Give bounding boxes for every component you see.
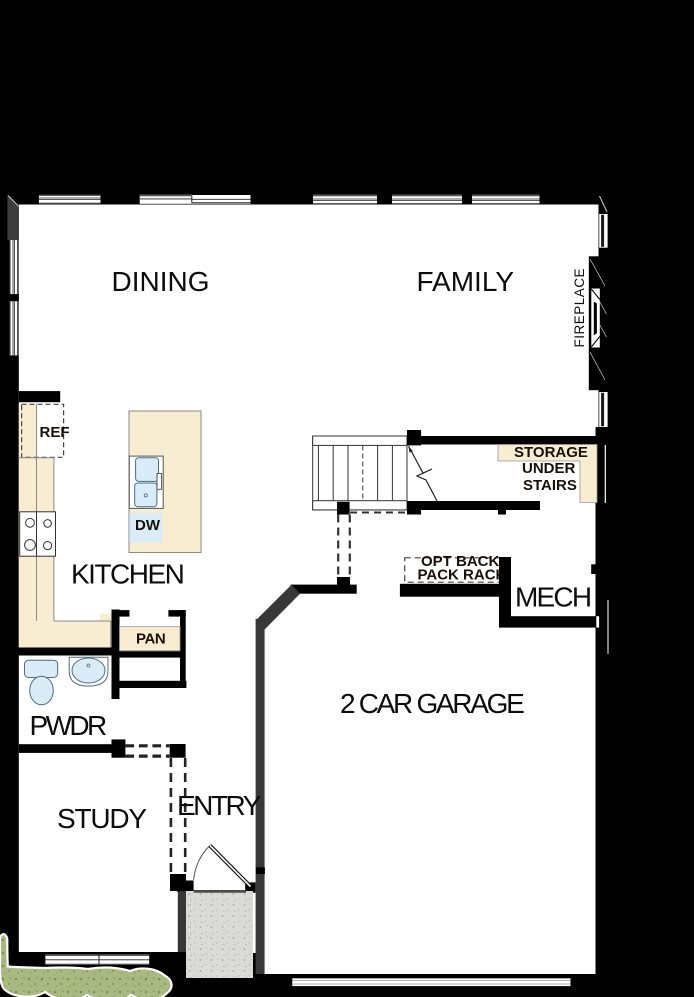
svg-text:DW: DW (135, 517, 161, 534)
svg-text:REF: REF (40, 424, 70, 441)
svg-text:PWDR: PWDR (30, 710, 107, 741)
svg-text:DINING: DINING (112, 266, 210, 297)
svg-text:ENTRY: ENTRY (177, 790, 262, 821)
svg-text:PACK RACK: PACK RACK (418, 567, 507, 584)
svg-text:STAIRS: STAIRS (523, 477, 577, 494)
svg-text:KITCHEN: KITCHEN (71, 559, 183, 590)
svg-text:MECH: MECH (515, 582, 590, 613)
svg-text:FIREPLACE: FIREPLACE (572, 268, 587, 348)
svg-text:PAN: PAN (136, 631, 165, 648)
svg-text:UNDER: UNDER (522, 460, 576, 477)
svg-text:STORAGE: STORAGE (514, 444, 588, 461)
svg-text:2 CAR GARAGE: 2 CAR GARAGE (340, 688, 524, 719)
svg-text:STUDY: STUDY (57, 803, 147, 834)
svg-text:FAMILY: FAMILY (417, 266, 515, 297)
